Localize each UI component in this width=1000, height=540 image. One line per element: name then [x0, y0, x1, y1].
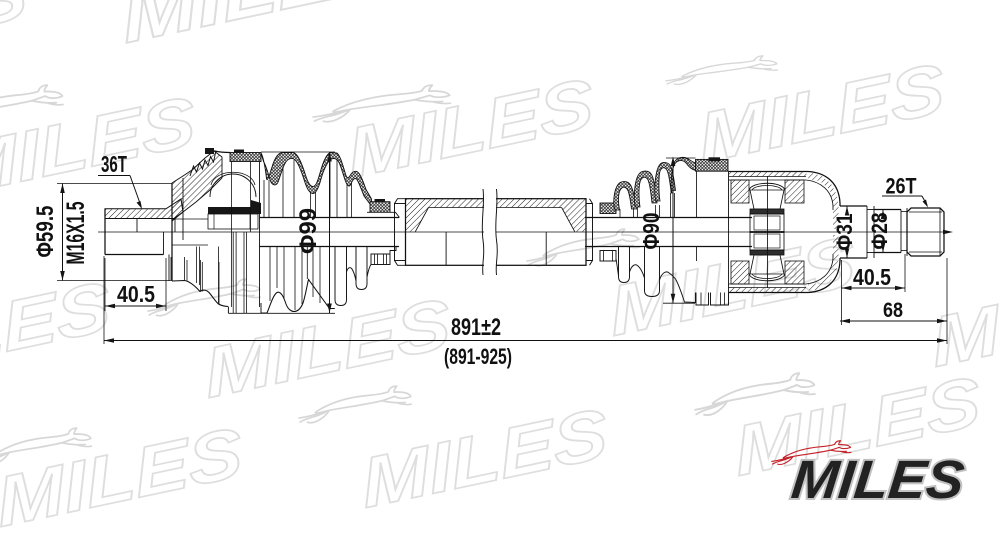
svg-text:891±2: 891±2 [451, 314, 501, 341]
svg-text:MILES: MILES [789, 450, 967, 510]
svg-text:40.5: 40.5 [117, 281, 155, 307]
svg-text:26T: 26T [886, 174, 917, 199]
svg-text:36T: 36T [101, 151, 127, 177]
svg-text:Φ28: Φ28 [867, 213, 892, 250]
svg-text:Φ31: Φ31 [832, 214, 857, 251]
svg-text:Φ59.5: Φ59.5 [32, 206, 59, 258]
svg-text:68: 68 [883, 299, 903, 322]
svg-text:(891-925): (891-925) [444, 344, 512, 369]
svg-text:M16X1.5: M16X1.5 [62, 201, 90, 264]
svg-text:40.5: 40.5 [853, 264, 891, 290]
svg-text:Φ90: Φ90 [638, 213, 664, 250]
svg-text:Φ99: Φ99 [295, 208, 322, 254]
